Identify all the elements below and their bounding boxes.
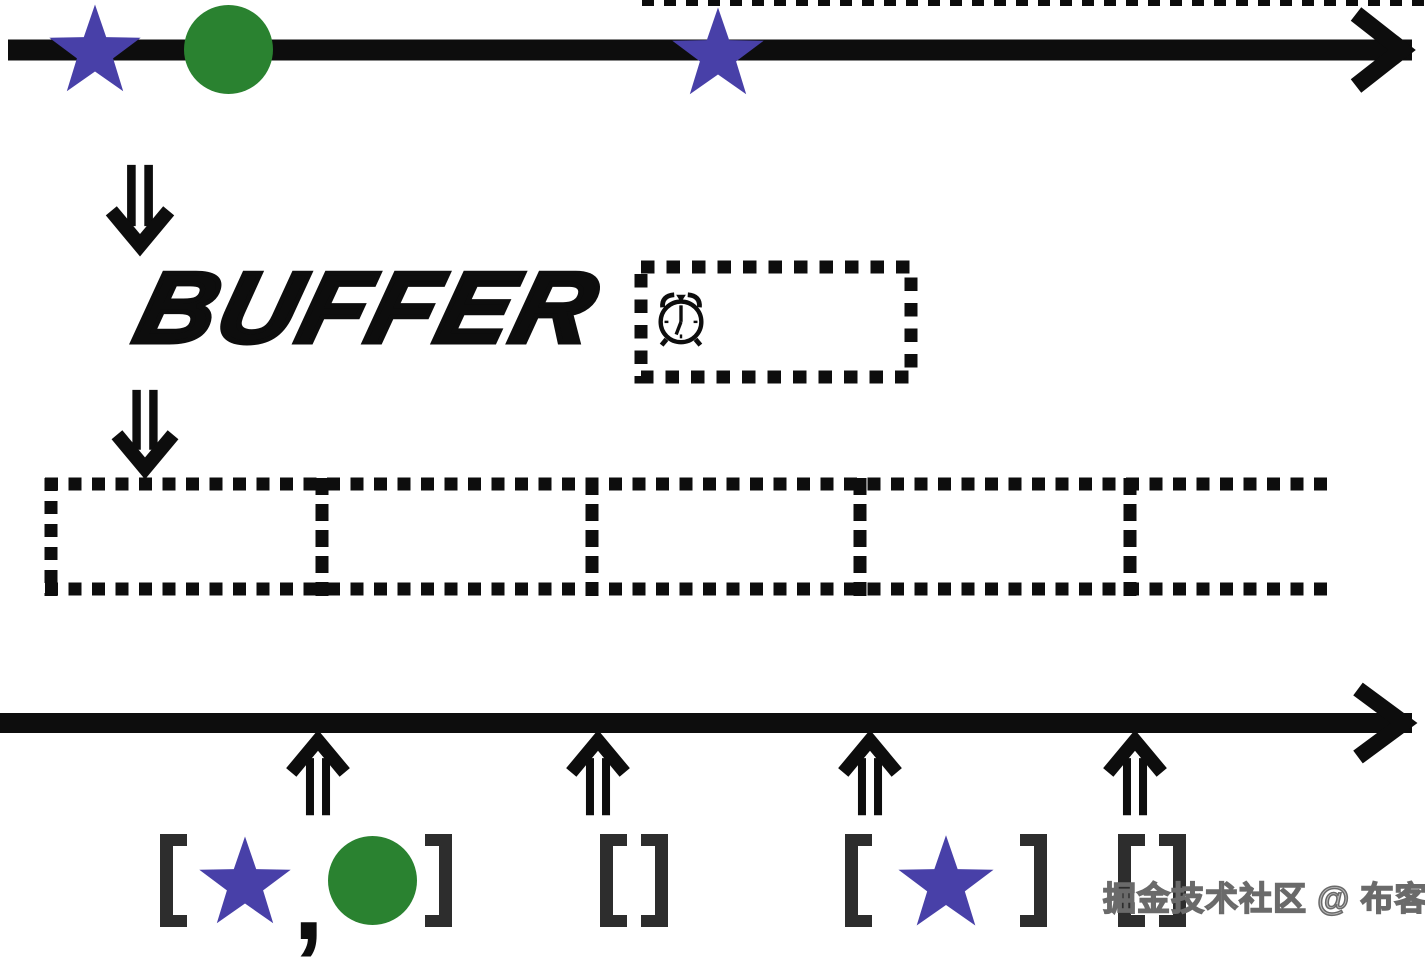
close-bracket-icon [425, 834, 452, 927]
buffer-cells-strip [0, 470, 1425, 605]
star-marker [195, 834, 295, 926]
operator-label: BUFFER [128, 262, 608, 354]
alarm-clock-icon [650, 287, 712, 349]
open-bracket-icon [160, 834, 187, 927]
close-bracket-icon [641, 834, 668, 927]
circle-marker [184, 5, 273, 94]
double-up-arrow-icon [558, 735, 638, 817]
output-timeline-arrow [0, 678, 1425, 768]
output-group-2 [600, 832, 668, 928]
close-bracket-icon [1020, 834, 1047, 927]
output-group-3 [845, 832, 1047, 928]
open-bracket-icon [600, 834, 627, 927]
watermark: 掘金技术社区 @ 布客飞龙 [1103, 872, 1425, 920]
comma: , [293, 876, 324, 926]
output-group-1: , [160, 832, 452, 928]
star-marker [45, 2, 145, 94]
double-up-arrow-icon [830, 735, 910, 817]
double-down-arrow-icon [100, 163, 180, 251]
double-up-arrow-icon [1095, 735, 1175, 817]
double-down-arrow-icon [105, 388, 185, 474]
circle-marker [328, 836, 417, 925]
double-up-arrow-icon [278, 735, 358, 817]
open-bracket-icon [845, 834, 872, 927]
star-marker [668, 5, 768, 97]
star-marker [894, 833, 998, 928]
